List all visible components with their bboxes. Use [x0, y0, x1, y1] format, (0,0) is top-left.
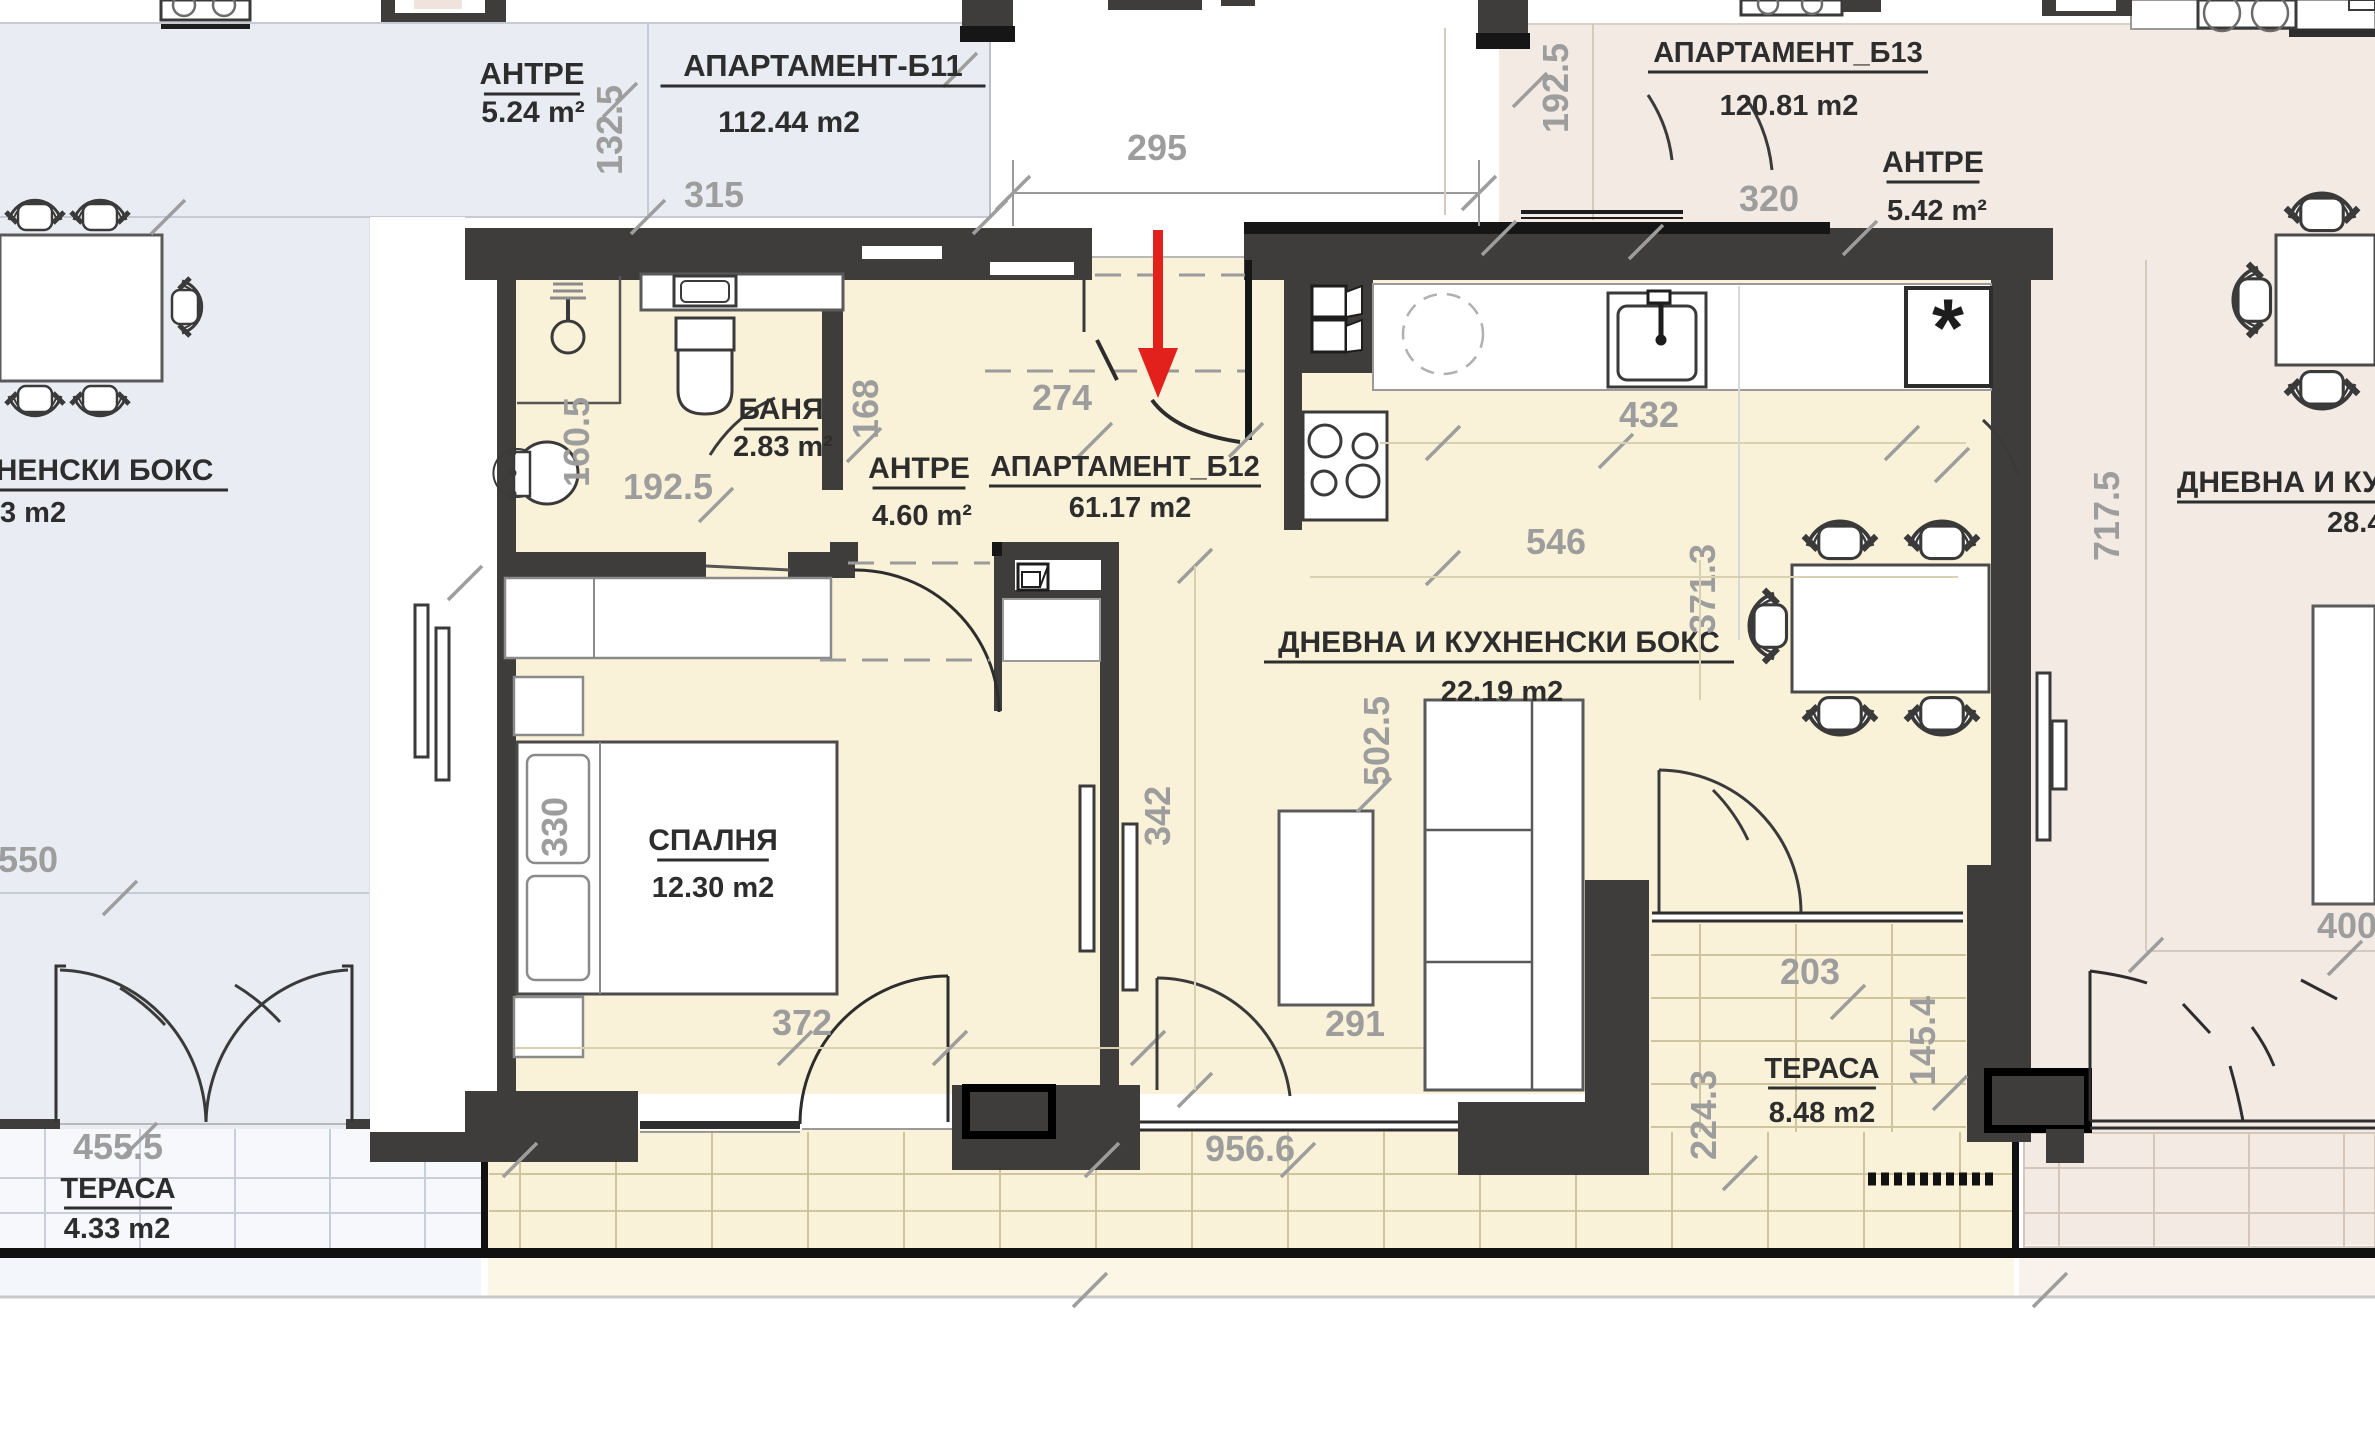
svg-text:342: 342 [1137, 786, 1178, 846]
svg-text:168: 168 [845, 379, 886, 439]
svg-text:372: 372 [772, 1002, 832, 1043]
svg-text:145.4: 145.4 [1902, 996, 1943, 1086]
svg-text:4.33 m2: 4.33 m2 [64, 1213, 170, 1245]
svg-text:956.6: 956.6 [1205, 1128, 1295, 1169]
svg-text:ТЕРАСА: ТЕРАСА [1764, 1053, 1879, 1085]
svg-text:ТЕРАСА: ТЕРАСА [60, 1173, 175, 1205]
svg-text:120.81 m2: 120.81 m2 [1720, 90, 1859, 122]
svg-text:4.60 m²: 4.60 m² [872, 500, 972, 532]
svg-text:320: 320 [1739, 178, 1799, 219]
svg-text:8.48 m2: 8.48 m2 [1769, 1097, 1875, 1129]
svg-text:АНТРЕ: АНТРЕ [1882, 146, 1984, 179]
svg-text:5.42 m²: 5.42 m² [1887, 195, 1987, 227]
svg-text:330: 330 [534, 797, 575, 857]
svg-text:455.5: 455.5 [73, 1126, 163, 1167]
svg-text:5.24 m²: 5.24 m² [481, 96, 584, 129]
svg-text:22.19 m2: 22.19 m2 [1441, 676, 1564, 708]
svg-text:224.3: 224.3 [1683, 1070, 1724, 1160]
svg-text:СПАЛНЯ: СПАЛНЯ [648, 824, 778, 857]
svg-text:112.44 m2: 112.44 m2 [718, 106, 860, 139]
svg-text:371.3: 371.3 [1682, 544, 1723, 634]
svg-text:291: 291 [1325, 1003, 1385, 1044]
svg-text:203: 203 [1780, 951, 1840, 992]
svg-text:192.5: 192.5 [623, 466, 713, 507]
svg-text:400: 400 [2317, 905, 2375, 946]
svg-text:АПАРТАМЕНТ-Б11: АПАРТАМЕНТ-Б11 [683, 48, 962, 83]
svg-text:АПАРТАМЕНТ_Б13: АПАРТАМЕНТ_Б13 [1653, 37, 1923, 69]
svg-text:АНТРЕ: АНТРЕ [479, 56, 584, 91]
svg-text:БАНЯ: БАНЯ [738, 393, 823, 426]
svg-text:12.30 m2: 12.30 m2 [652, 872, 775, 904]
svg-text:502.5: 502.5 [1356, 696, 1397, 786]
svg-text:274: 274 [1032, 377, 1092, 418]
svg-text:ДНЕВНА И КУХНЕНСКИ БОКС: ДНЕВНА И КУХНЕНСКИ БОКС [1278, 626, 1720, 659]
svg-text:432: 432 [1619, 394, 1679, 435]
svg-text:546: 546 [1526, 521, 1586, 562]
svg-text:550: 550 [0, 839, 58, 880]
svg-text:28.43 m2: 28.43 m2 [2327, 507, 2375, 539]
svg-text:160.5: 160.5 [556, 397, 597, 487]
svg-text:2.83 m²: 2.83 m² [733, 431, 833, 463]
svg-text:3 m2: 3 m2 [0, 497, 66, 529]
svg-text:717.5: 717.5 [2086, 471, 2127, 561]
svg-text:315: 315 [684, 174, 744, 215]
svg-text:АПАРТАМЕНТ_Б12: АПАРТАМЕНТ_Б12 [990, 451, 1260, 483]
svg-text:АНТРЕ: АНТРЕ [868, 452, 970, 485]
svg-text:132.5: 132.5 [589, 85, 630, 175]
svg-text:*: * [1932, 283, 1964, 374]
svg-text:61.17 m2: 61.17 m2 [1069, 492, 1192, 524]
svg-text:192.5: 192.5 [1535, 43, 1576, 133]
svg-text:295: 295 [1127, 127, 1187, 168]
svg-text:КУХНЕНСКИ БОКС: КУХНЕНСКИ БОКС [0, 454, 213, 487]
svg-text:ДНЕВНА И КУХ: ДНЕВНА И КУХ [2177, 466, 2375, 499]
